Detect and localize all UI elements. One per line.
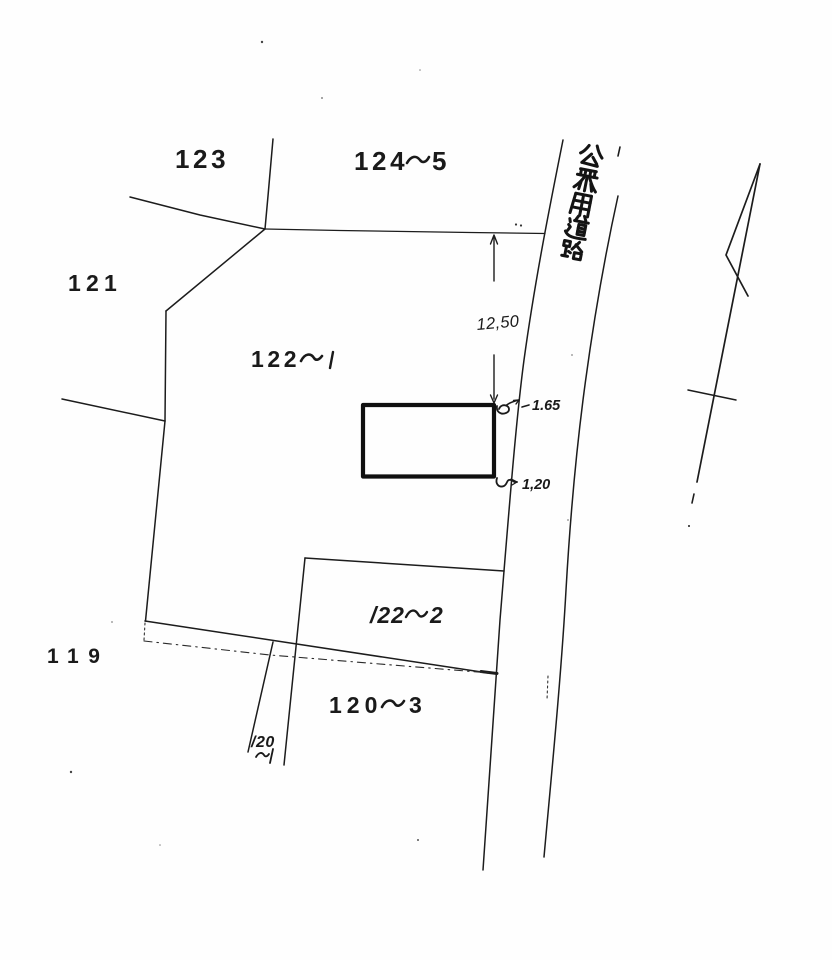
svg-text:/22: /22 bbox=[369, 602, 405, 628]
svg-text:/20: /20 bbox=[250, 734, 275, 751]
svg-text:123: 123 bbox=[175, 144, 229, 174]
svg-text:5: 5 bbox=[432, 146, 446, 176]
svg-text:121: 121 bbox=[68, 270, 122, 296]
svg-text:1.65: 1.65 bbox=[532, 398, 561, 414]
svg-text:119: 119 bbox=[47, 645, 109, 668]
svg-text:2: 2 bbox=[429, 602, 443, 628]
svg-text:3: 3 bbox=[409, 692, 422, 718]
svg-text:12,50: 12,50 bbox=[476, 312, 521, 334]
svg-text:122: 122 bbox=[251, 346, 300, 372]
svg-text:120: 120 bbox=[329, 692, 382, 718]
svg-text:124: 124 bbox=[354, 146, 408, 176]
svg-text:1,20: 1,20 bbox=[522, 477, 550, 493]
